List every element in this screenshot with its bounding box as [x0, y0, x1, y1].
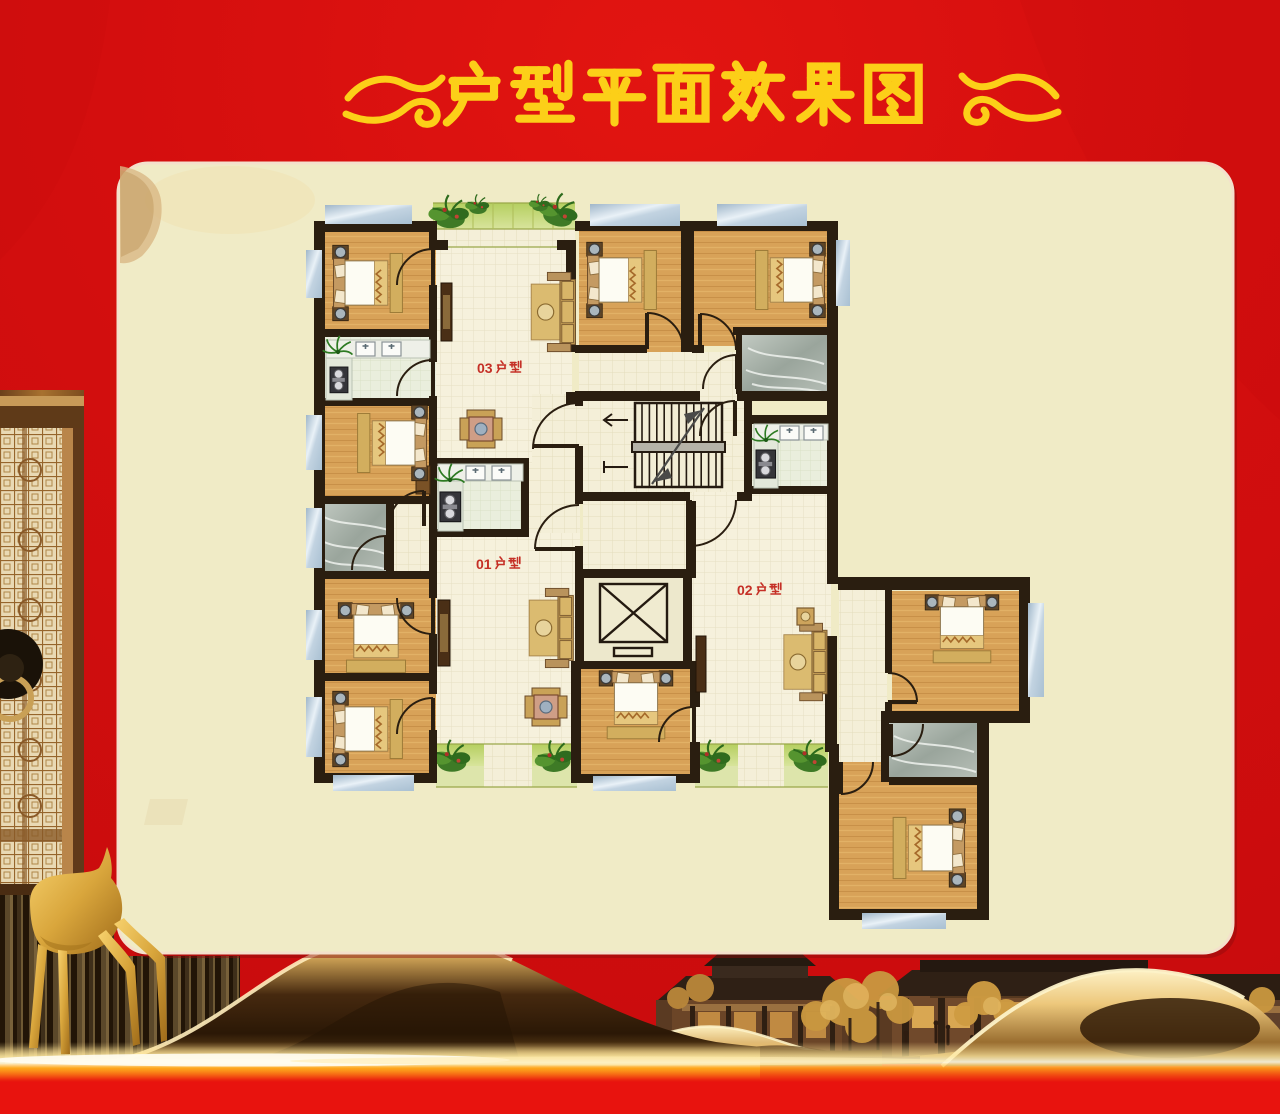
svg-text:03: 03: [477, 360, 493, 376]
svg-text:01: 01: [476, 556, 492, 572]
svg-text:02: 02: [737, 582, 753, 598]
